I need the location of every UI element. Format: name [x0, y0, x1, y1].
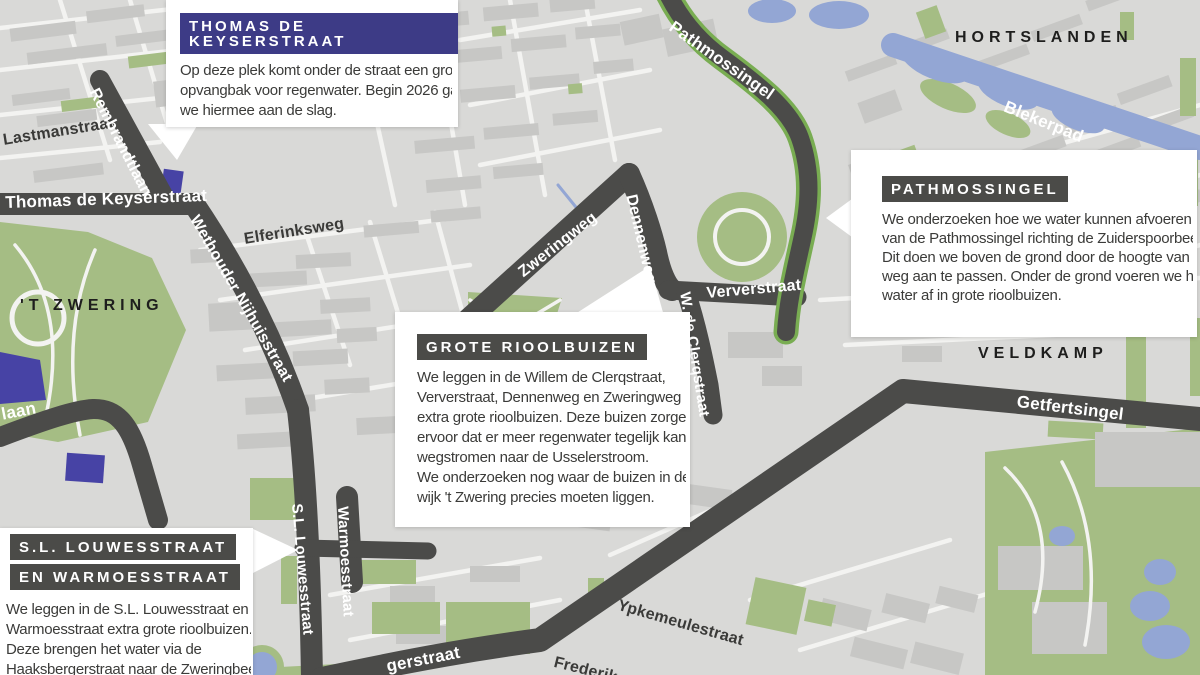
callout-body: We leggen in de S.L. Louwesstraat en War… [6, 600, 251, 675]
callout-title: PATHMOSSINGEL [882, 176, 1068, 202]
pointer-grote-rioolbuizen [572, 266, 664, 316]
callout-body: We onderzoeken hoe we water kunnen afvoe… [882, 210, 1193, 305]
callout-pathmossingel: PATHMOSSINGEL We onderzoeken hoe we wate… [851, 150, 1197, 337]
map-infographic: Lastmanstraat Rembrandtlaan Thomas de Ke… [0, 0, 1200, 675]
pointer-thomas [148, 124, 198, 160]
pointer-louwes [251, 528, 298, 574]
callout-body: We leggen in de Willem de Clerqstraat, V… [417, 368, 686, 508]
callout-body: Op deze plek komt onder de straat een gr… [180, 61, 452, 121]
callout-title-line2: EN WARMOESSTRAAT [10, 564, 240, 590]
callout-title: GROTE RIOOLBUIZEN [417, 334, 647, 360]
callout-title-line1: S.L. LOUWESSTRAAT [10, 534, 236, 560]
callout-grote-rioolbuizen: GROTE RIOOLBUIZEN We leggen in de Willem… [395, 312, 690, 527]
callout-sl-louwesstraat: S.L. LOUWESSTRAAT EN WARMOESSTRAAT We le… [0, 528, 253, 675]
callout-thomas-de-keyserstraat: THOMAS DE KEYSERSTRAAT Op deze plek komt… [166, 0, 458, 127]
callout-title: THOMAS DE KEYSERSTRAAT [180, 13, 458, 54]
